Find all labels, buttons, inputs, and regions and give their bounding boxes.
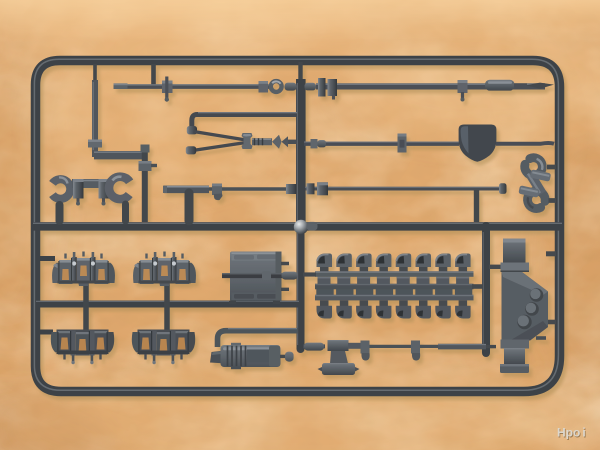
svg-text:Hpoi: Hpoi — [557, 426, 586, 440]
